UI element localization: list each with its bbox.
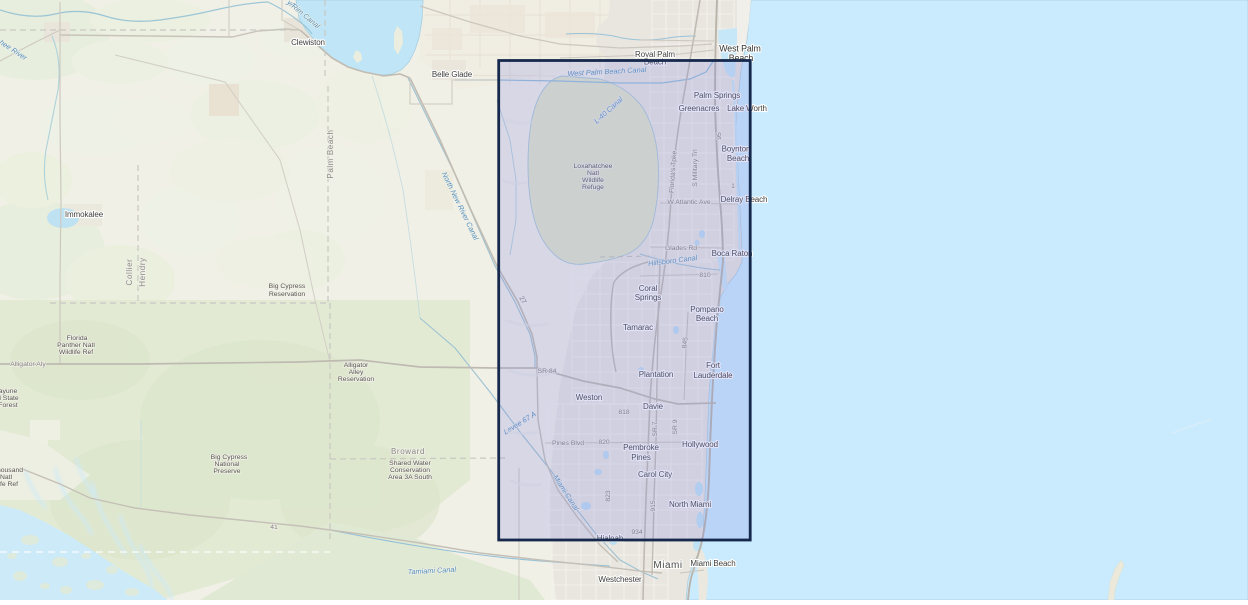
svg-text:nd State: nd State <box>0 395 19 402</box>
svg-text:housand: housand <box>0 467 23 474</box>
svg-text:Clewiston: Clewiston <box>291 38 325 47</box>
svg-text:ayune: ayune <box>0 388 17 395</box>
svg-text:Miami: Miami <box>653 560 682 571</box>
svg-text:Broward: Broward <box>391 447 425 456</box>
svg-text:Alligator: Alligator <box>344 362 369 369</box>
svg-text:Belle Glade: Belle Glade <box>432 70 473 79</box>
svg-text:Conservation: Conservation <box>390 467 430 474</box>
svg-text:Shared Water: Shared Water <box>389 460 431 467</box>
svg-text:Preserve: Preserve <box>213 468 240 475</box>
svg-text:West Palm: West Palm <box>719 44 760 54</box>
svg-text:Miami Beach: Miami Beach <box>690 559 735 568</box>
svg-text:Panther Natl: Panther Natl <box>57 342 95 349</box>
svg-text:Big Cypress: Big Cypress <box>211 454 248 461</box>
svg-text:Wildlife Ref: Wildlife Ref <box>59 349 93 356</box>
svg-text:Hendry: Hendry <box>138 257 147 286</box>
svg-text:Forest: Forest <box>0 402 18 409</box>
svg-text:Westchester: Westchester <box>598 575 642 584</box>
svg-text:Reservation: Reservation <box>269 291 305 298</box>
svg-text:Immokalee: Immokalee <box>65 210 104 219</box>
svg-text:Alligator Aly: Alligator Aly <box>10 361 46 368</box>
svg-text:Palm Beach: Palm Beach <box>326 129 335 178</box>
svg-text:Alley: Alley <box>349 369 364 376</box>
svg-text:National: National <box>215 461 240 468</box>
svg-text:fe Ref: fe Ref <box>0 481 18 488</box>
svg-text:Collier: Collier <box>125 259 134 286</box>
svg-text:41: 41 <box>270 524 278 531</box>
svg-text:Reservation: Reservation <box>338 376 374 383</box>
svg-text:Florida: Florida <box>67 335 88 342</box>
svg-text:Natl: Natl <box>0 474 13 481</box>
svg-text:Big Cypress: Big Cypress <box>269 283 306 290</box>
svg-text:Area 3A South: Area 3A South <box>388 474 432 481</box>
